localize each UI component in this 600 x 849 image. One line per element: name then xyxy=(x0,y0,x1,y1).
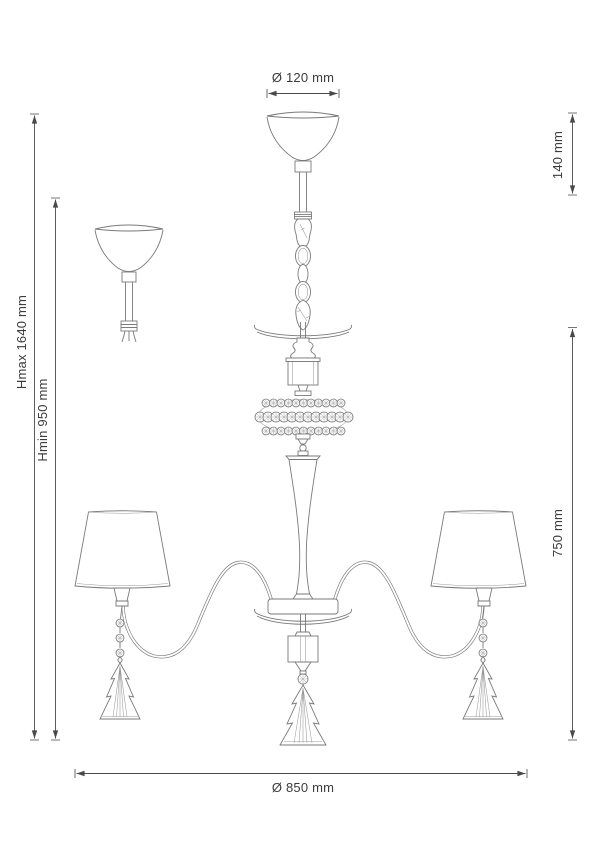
ring-lower-taper xyxy=(298,439,308,444)
lower-cone xyxy=(295,662,311,671)
detail-cup-bell xyxy=(95,230,163,272)
detail-wires xyxy=(122,331,136,342)
fixture-diameter-label: Ø 850 mm xyxy=(272,780,334,795)
column-body xyxy=(289,460,317,595)
left-socket-collar xyxy=(116,601,128,606)
technical-drawing-page: Ø 120 mm 140 mm 750 mm Hmax 1640 mm Hmin… xyxy=(0,0,600,849)
upper-baluster xyxy=(291,338,316,358)
suspension-rod xyxy=(300,172,307,212)
main-canopy xyxy=(267,112,339,212)
detail-rod xyxy=(126,282,133,321)
central-pendant-assembly xyxy=(280,632,326,745)
lower-collar xyxy=(295,632,311,636)
column-cap xyxy=(286,456,320,460)
ring-lower-collar xyxy=(296,434,310,439)
detail-cup-rim xyxy=(95,225,163,231)
chandelier-dimension-drawing: Ø 120 mm 140 mm 750 mm Hmax 1640 mm Hmin… xyxy=(0,0,600,849)
detail-cup-neck xyxy=(122,272,136,282)
lower-block xyxy=(288,636,318,662)
canopy-diameter-label: Ø 120 mm xyxy=(272,70,334,85)
central-column xyxy=(254,434,351,634)
neck-collar xyxy=(295,391,311,396)
max-height-label: Hmax 1640 mm xyxy=(14,295,29,389)
chain-link xyxy=(296,282,311,303)
min-height-label: Hmin 950 mm xyxy=(35,378,50,461)
left-socket xyxy=(114,588,130,601)
detail-connector xyxy=(121,321,137,331)
left-pendant-wire xyxy=(121,606,123,619)
upper-body xyxy=(254,325,351,396)
canopy-rim xyxy=(267,112,339,118)
crystal-bead-ring xyxy=(255,399,353,435)
left-shade xyxy=(75,511,170,589)
lower-cone-collar xyxy=(300,671,306,674)
column-finial-collar xyxy=(298,451,308,456)
right-socket-collar xyxy=(478,601,490,606)
arm-hub xyxy=(268,599,338,614)
rod-coupler xyxy=(295,212,312,219)
shackle xyxy=(295,219,312,247)
suspension-height-label: 140 mm xyxy=(550,131,565,179)
chain-link xyxy=(298,265,308,284)
column-base-flare xyxy=(293,594,313,599)
canopy-neck xyxy=(295,161,311,172)
chain-suspension xyxy=(295,212,312,338)
ceiling-cup-detail xyxy=(95,225,163,342)
column-finial-knob xyxy=(300,445,306,451)
chain-link xyxy=(296,246,311,267)
right-socket xyxy=(476,588,492,601)
block-flange xyxy=(286,358,320,362)
body-height-label: 750 mm xyxy=(550,509,565,557)
right-shade xyxy=(431,511,526,589)
canopy-bell xyxy=(267,117,339,161)
neck-taper xyxy=(298,385,308,391)
